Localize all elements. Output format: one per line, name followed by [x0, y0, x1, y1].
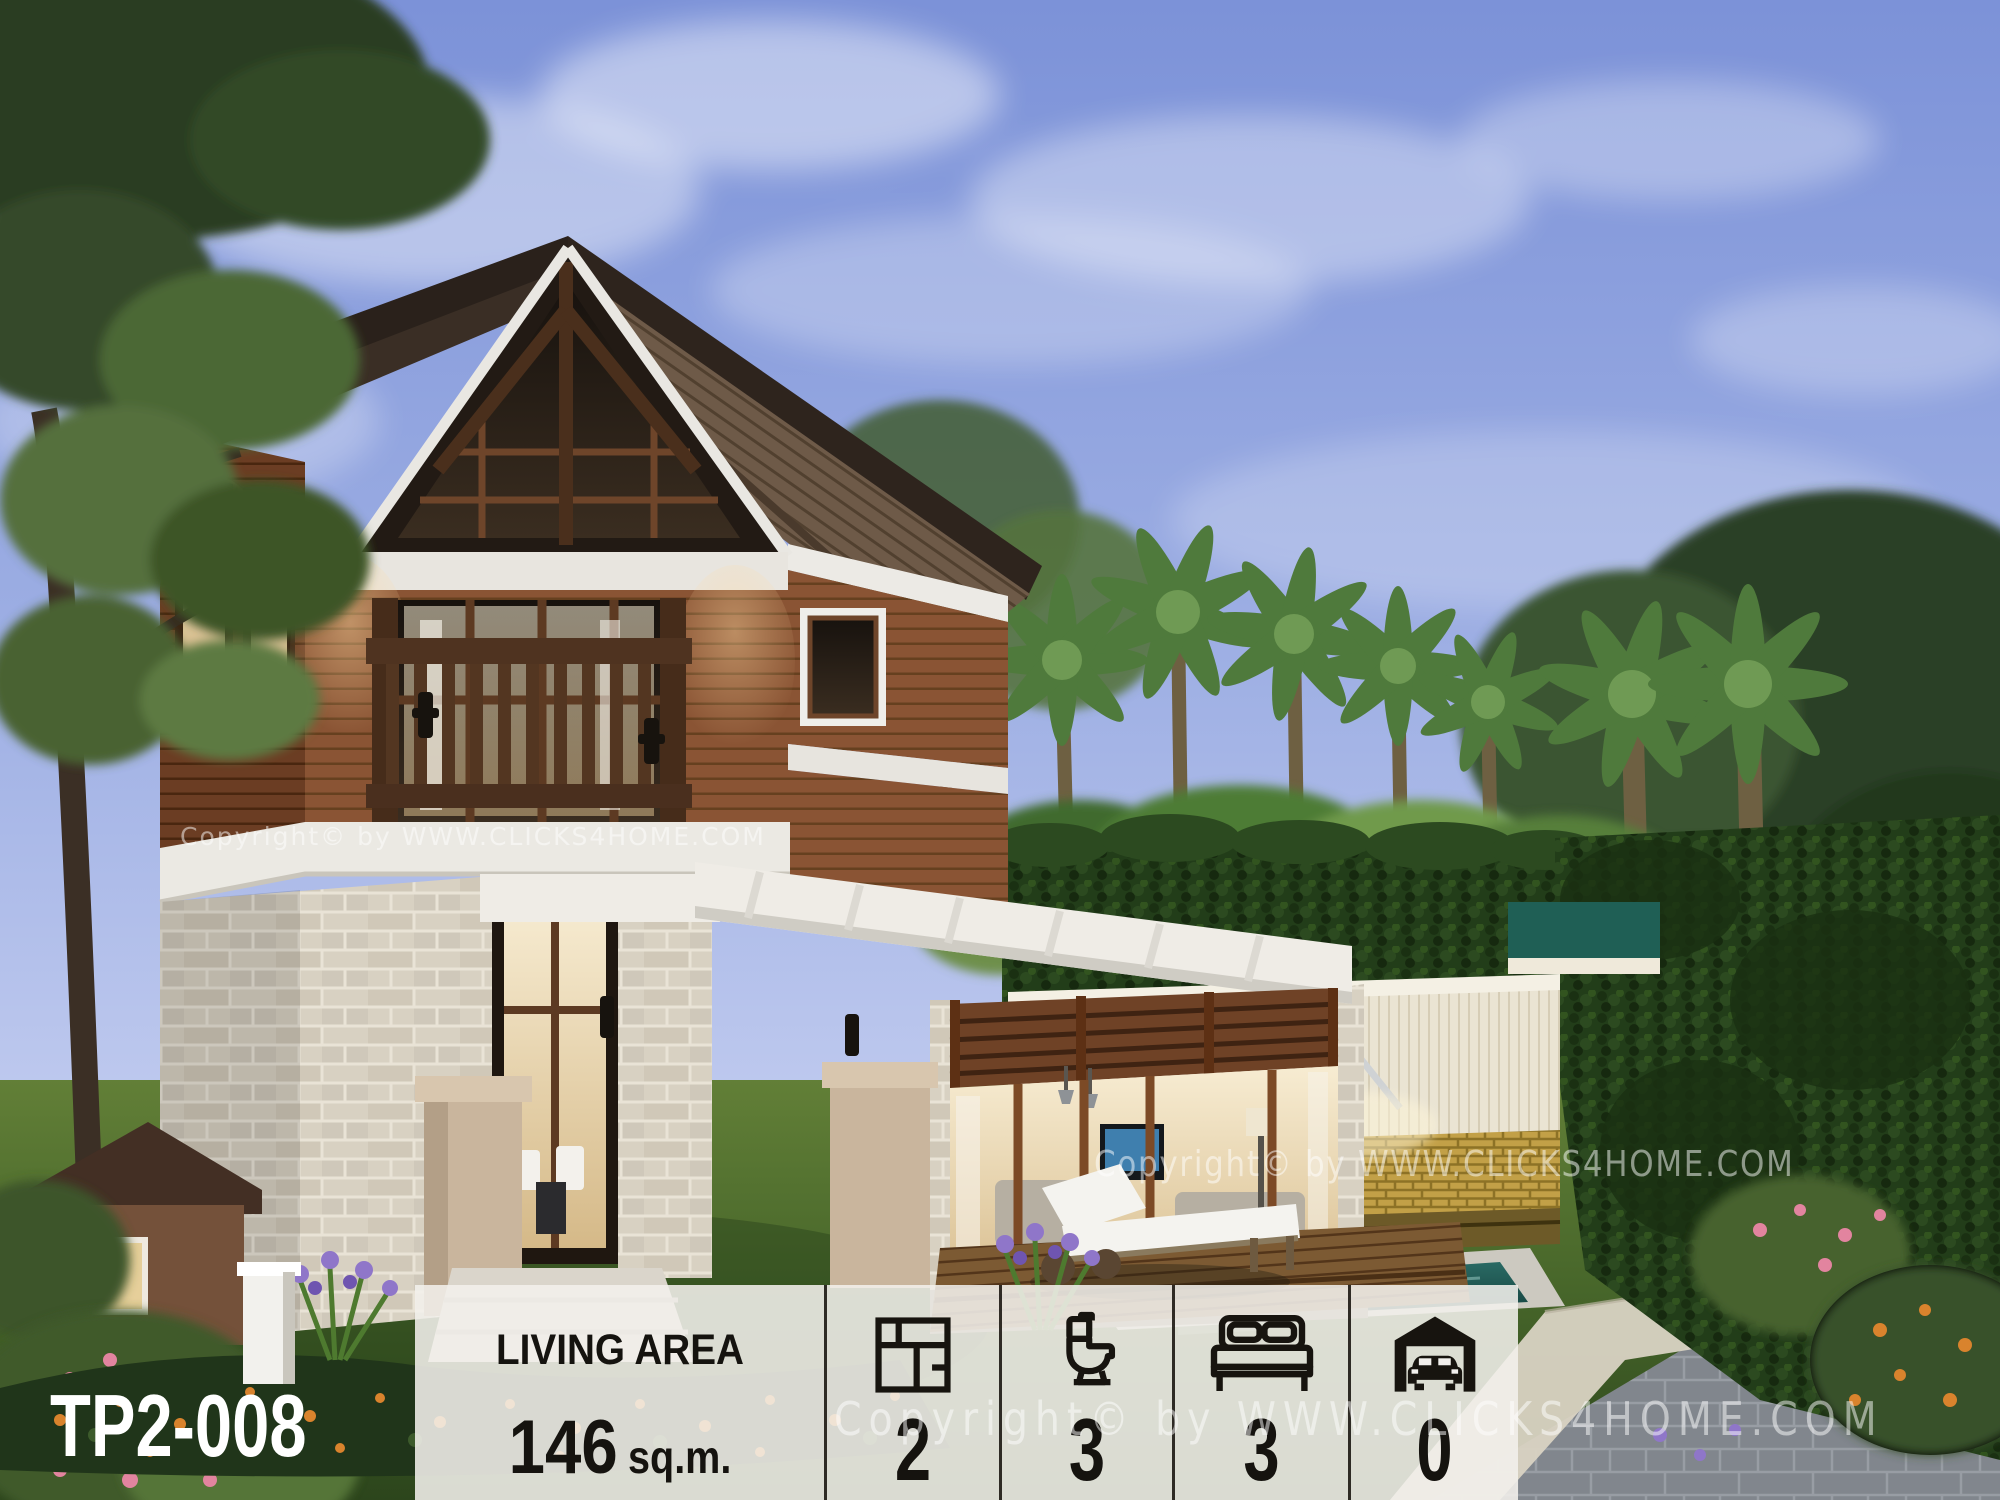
bed-icon — [1206, 1311, 1318, 1399]
stat-carpark-value: 0 — [1373, 1406, 1497, 1494]
scene-illustration — [0, 0, 2000, 1500]
living-area-value: 146 — [509, 1410, 618, 1486]
stat-bedrooms: 3 — [1175, 1285, 1348, 1500]
info-panel: LIVING AREA 146 sq.m. 2 — [415, 1285, 1518, 1500]
stat-bathrooms-value: 3 — [1024, 1406, 1150, 1494]
model-code: TP2-008 — [50, 1382, 307, 1470]
stat-bedrooms-value: 3 — [1197, 1406, 1325, 1494]
living-area-unit: sq.m. — [628, 1434, 731, 1480]
stat-storeys: 2 — [827, 1285, 999, 1500]
toilet-icon — [1043, 1311, 1131, 1399]
stat-carpark: 0 — [1351, 1285, 1518, 1500]
house-render-image: Copyright© by WWW.CLICKS4HOME.COM Copyri… — [0, 0, 2000, 1500]
living-area-section: LIVING AREA 146 sq.m. — [415, 1285, 825, 1500]
floorplan-icon — [869, 1311, 957, 1399]
garage-icon — [1387, 1311, 1482, 1399]
living-area-label: LIVING AREA — [436, 1329, 805, 1372]
living-area-value-row: 146 sq.m. — [444, 1410, 797, 1486]
stat-storeys-value: 2 — [849, 1406, 976, 1494]
stat-bathrooms: 3 — [1002, 1285, 1172, 1500]
garden-bollard — [237, 1262, 301, 1384]
